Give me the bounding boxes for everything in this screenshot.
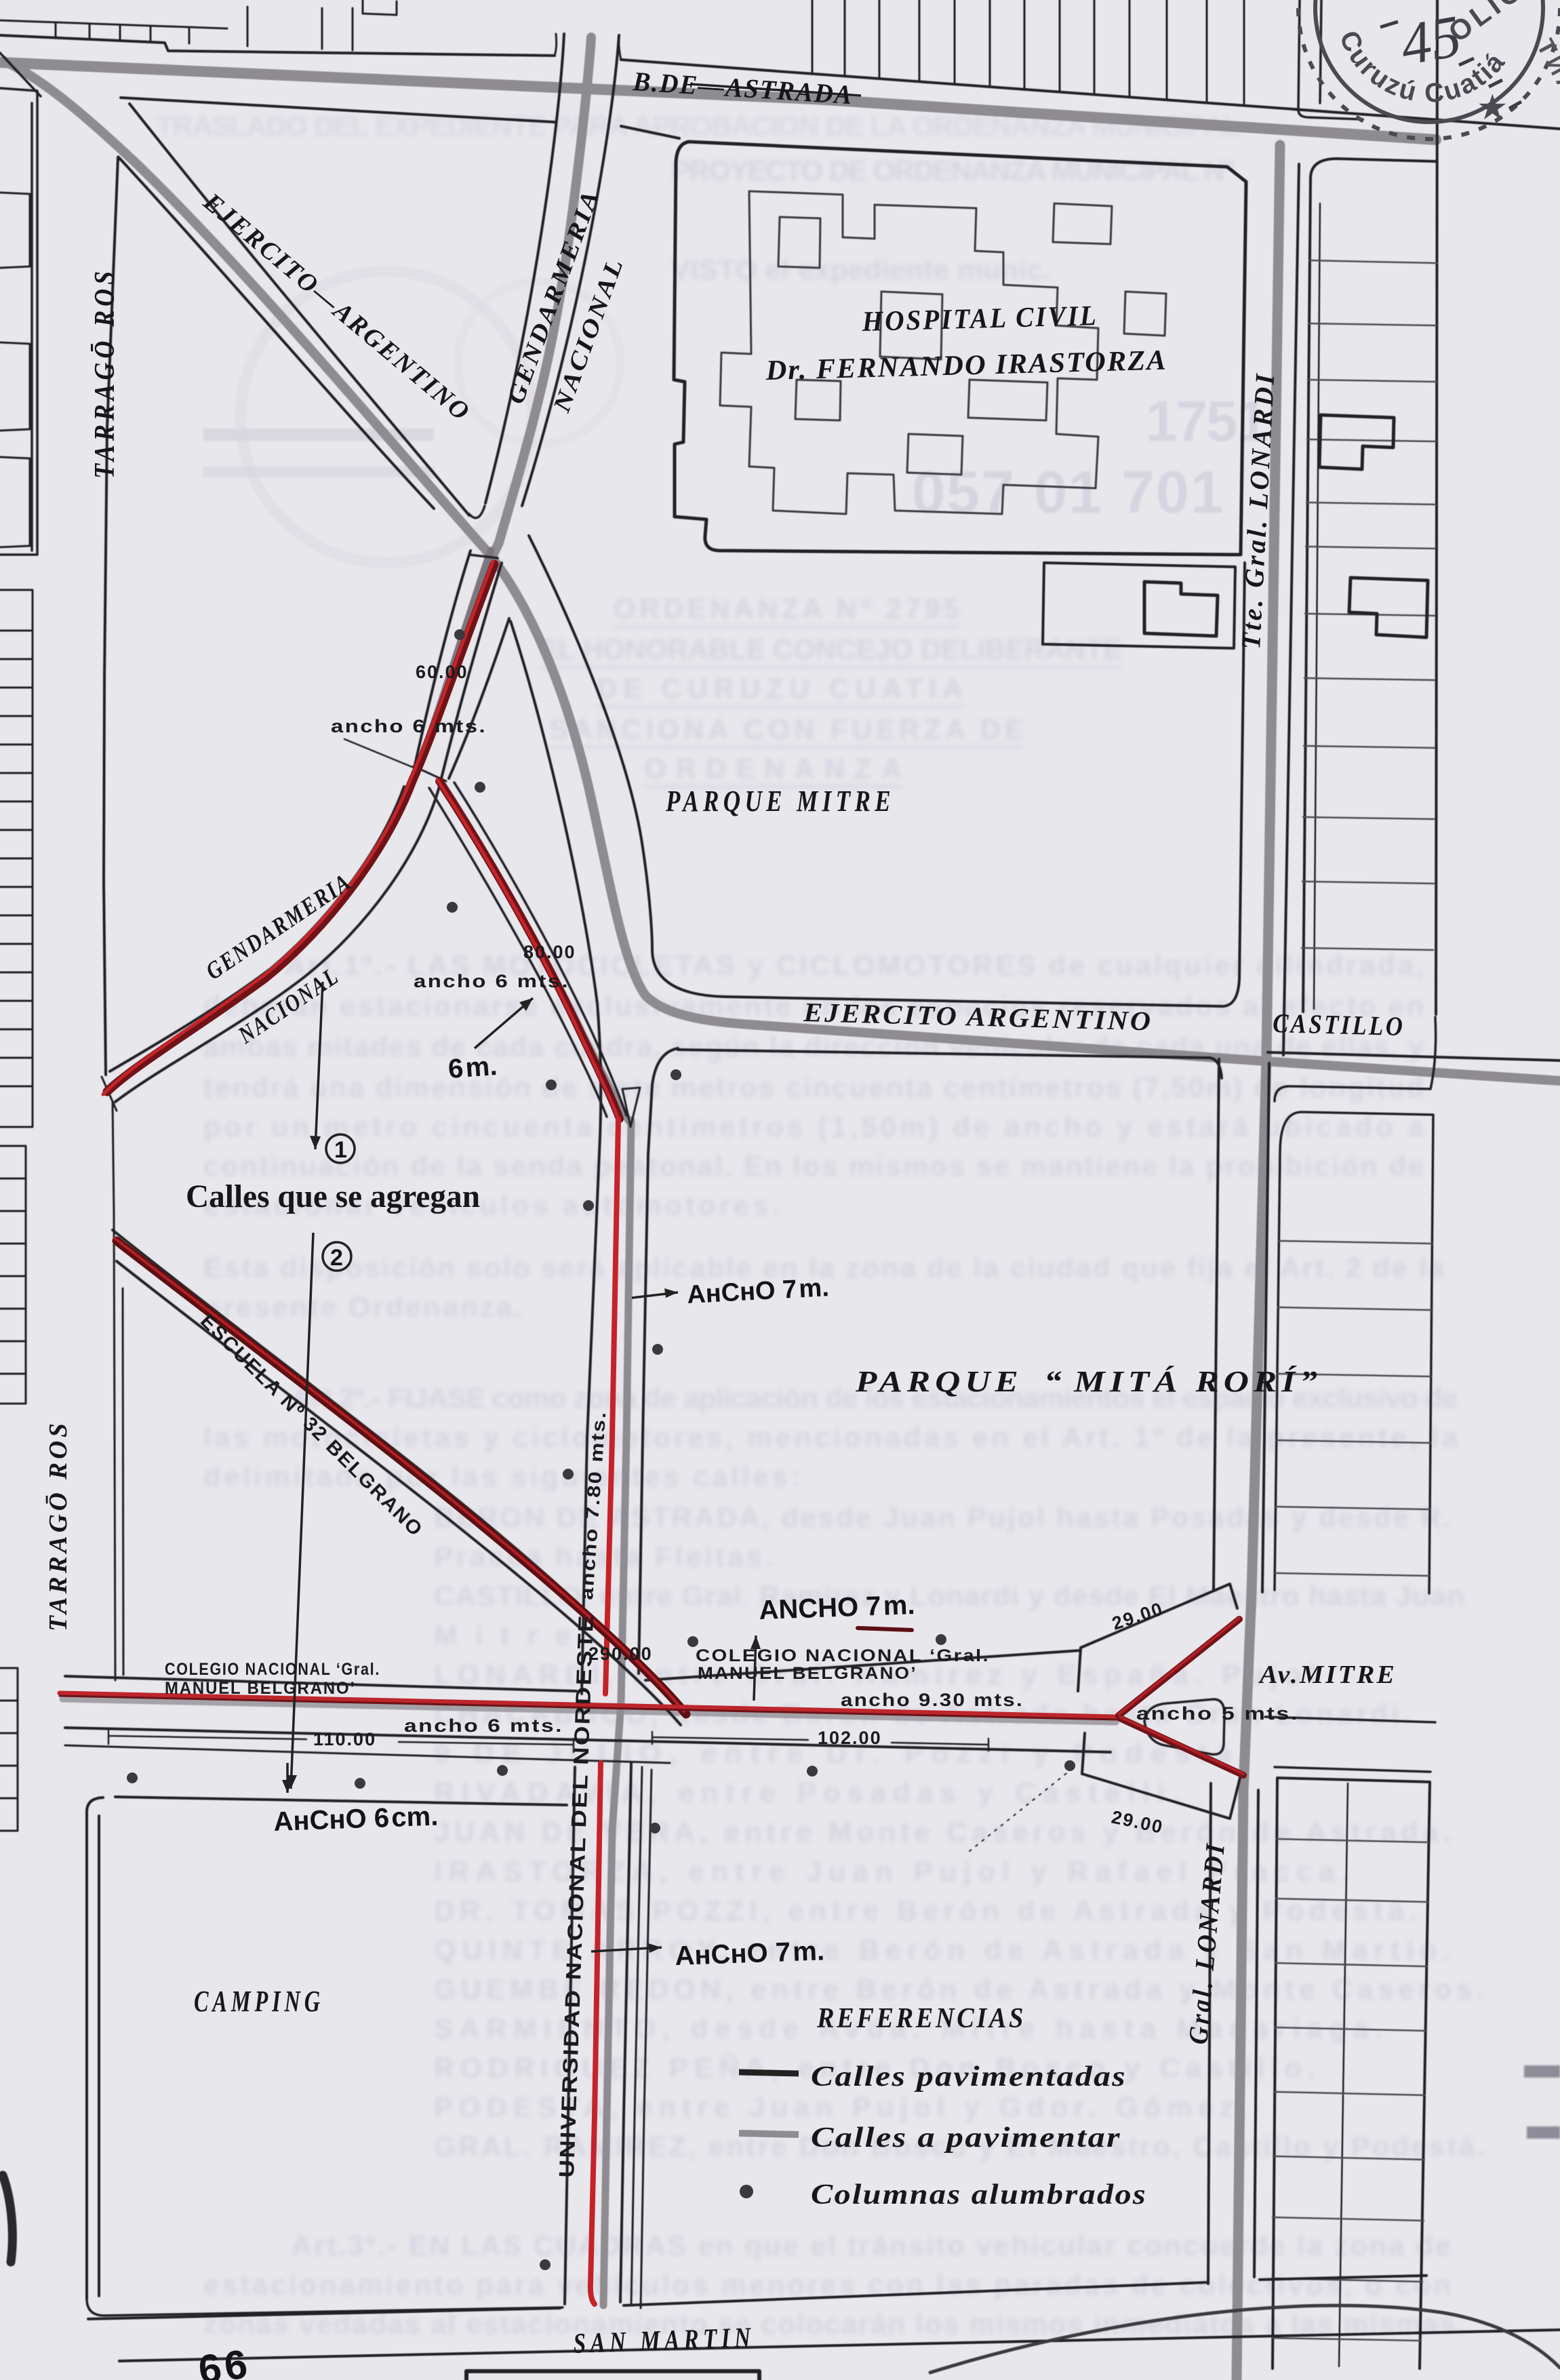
svg-text:PODESTA, entre Juan Pujol y Gd: PODESTA, entre Juan Pujol y Gdor. Gómez. (434, 2091, 1247, 2123)
svg-text:Calles que se agregan: Calles que se agregan (186, 1178, 480, 1214)
svg-text:Pracca hasta Fleitas.: Pracca hasta Fleitas. (434, 1541, 773, 1572)
svg-text:AнCнO 6 cm.: AнCнO 6 cm. (273, 1802, 439, 1837)
svg-text:ancho 5 mts.: ancho 5 mts. (1136, 1703, 1299, 1724)
svg-text:PROYECTO DE ORDENANZA MUNICIPA: PROYECTO DE ORDENANZA MUNICIPAL Nº (671, 155, 1234, 186)
svg-text:DE CURUZU CUATIA: DE CURUZU CUATIA (597, 673, 963, 705)
svg-text:CAMPING: CAMPING (194, 1985, 324, 2018)
svg-text:MANUEL BELGRANO’: MANUEL BELGRANO’ (698, 1664, 917, 1683)
svg-text:110.00: 110.00 (313, 1729, 376, 1749)
svg-text:continuación de la senda peato: continuación de la senda peatonal. En lo… (203, 1150, 1424, 1182)
svg-text:45: 45 (1396, 3, 1466, 79)
svg-text:HOSPITAL CIVIL: HOSPITAL CIVIL (861, 300, 1098, 338)
svg-text:COLEGIO NACIONAL ‘Gral.: COLEGIO NACIONAL ‘Gral. (165, 1660, 380, 1679)
svg-text:tendrá una dimensión de siete: tendrá una dimensión de siete metros cin… (203, 1071, 1424, 1103)
svg-text:SAN MARTIN: SAN MARTIN (573, 2322, 755, 2360)
svg-text:2: 2 (330, 1245, 343, 1271)
svg-text:ORDENANZA Nº 2795: ORDENANZA Nº 2795 (614, 593, 959, 624)
svg-text:Columnas alumbrados: Columnas alumbrados (811, 2179, 1147, 2210)
svg-text:AнCнO 7 m.: AнCнO 7 m. (675, 1936, 825, 1971)
svg-text:ancho 6 mts.: ancho 6 mts. (414, 971, 569, 991)
svg-text:Art.3º.- EN LAS CUADRAS en que: Art.3º.- EN LAS CUADRAS en que el tránsi… (292, 2229, 1451, 2261)
svg-text:ancho 6 mts.: ancho 6 mts. (404, 1715, 563, 1736)
svg-text:ancho 9.30 mts.: ancho 9.30 mts. (841, 1690, 1024, 1710)
svg-text:102.00: 102.00 (818, 1728, 882, 1748)
svg-text:Calles pavimentadas: Calles pavimentadas (811, 2061, 1127, 2093)
svg-text:80.00: 80.00 (523, 942, 576, 962)
svg-text:EL HONORABLE CONCEJO DELIBERAN: EL HONORABLE CONCEJO DELIBERANTE (539, 633, 1122, 665)
svg-text:★: ★ (1477, 88, 1508, 127)
svg-text:PARQUE MITRE: PARQUE MITRE (665, 785, 895, 818)
svg-text:COLEGIO NACIONAL ‘Gral.: COLEGIO NACIONAL ‘Gral. (696, 1646, 990, 1665)
svg-text:6 6: 6 6 (195, 2341, 249, 2380)
svg-text:290.00: 290.00 (588, 1644, 653, 1664)
svg-text:60.00: 60.00 (416, 662, 468, 682)
svg-text:por un metro cincuenta centíme: por un metro cincuenta centímetros (1,50… (203, 1111, 1424, 1143)
svg-text:TARRAGŌ ROS: TARRAGŌ ROS (44, 1420, 73, 1631)
svg-text:REFERENCIAS: REFERENCIAS (816, 2003, 1026, 2034)
svg-text:MANUEL BELGRANO’: MANUEL BELGRANO’ (165, 1679, 356, 1698)
svg-text:6 m.: 6 m. (447, 1051, 498, 1084)
svg-text:TARRAGŌ ROS: TARRAGŌ ROS (89, 267, 121, 479)
svg-text:1: 1 (334, 1137, 347, 1163)
svg-text:VISTO el expediente munic.: VISTO el expediente munic. (671, 254, 1051, 285)
svg-text:PARQUE “ MITÁ RORÍ”: PARQUE “ MITÁ RORÍ” (855, 1365, 1322, 1398)
svg-text:ORDENANZA: ORDENANZA (644, 753, 902, 785)
svg-text:ANCHO 7 m.: ANCHO 7 m. (759, 1590, 915, 1625)
svg-text:presente Ordenanza.: presente Ordenanza. (203, 1291, 522, 1323)
svg-text:CASTILLO: CASTILLO (1273, 1008, 1405, 1042)
svg-text:ancho 6 mts.: ancho 6 mts. (331, 716, 487, 736)
svg-text:Calles a pavimentar: Calles a pavimentar (811, 2122, 1121, 2154)
svg-text:Av.MITRE: Av.MITRE (1258, 1661, 1397, 1689)
